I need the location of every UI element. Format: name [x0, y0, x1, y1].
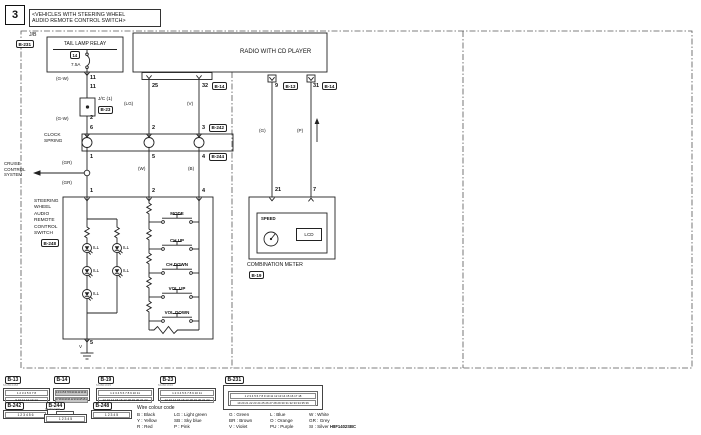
pin-cs-top-6: 6	[90, 125, 93, 131]
drawing-code: H8F1402SBC	[330, 424, 356, 430]
legend-entry: R : Red	[137, 424, 174, 430]
legend-entry: P : Pink	[174, 424, 229, 430]
meter-connector-ref: B-19	[249, 271, 264, 279]
b13-row-1: 1 2 3 4 5 6 7 8	[5, 390, 48, 396]
switch-name-label: STEERING WHEEL AUDIO REMOTE CONTROL SWIT…	[34, 199, 59, 237]
pin-jc-in-11: 11	[90, 84, 96, 90]
b23-row-1: 1 2 3 4 5 6 7 8 9 10 11	[160, 390, 214, 396]
button-mode-label: MODE	[157, 211, 197, 216]
connector-pinout-b244: 1 2 3 4 5	[44, 414, 87, 423]
ill-label-4: ILL	[123, 268, 129, 274]
button-ch-up-label: CH UP	[157, 238, 197, 243]
wire-color-g: (G)	[259, 128, 266, 134]
connector-pinout-b231: 1 2 3 4 5 6 7 8 9 10 11 12 13 14 15 16 1…	[223, 385, 323, 410]
combination-meter-label: COMBINATION METER	[247, 262, 303, 268]
pin-meter-7: 7	[313, 187, 316, 193]
radio-connector-b14: B-14	[212, 82, 227, 90]
fuse-rating: 7.5A	[71, 62, 80, 68]
fuse-number: 14	[70, 51, 80, 59]
connector-pinout-b242: 1 2 3 4 5 6	[3, 410, 48, 419]
wire-color-ground-v: V	[79, 344, 82, 350]
b248-row-1: 1 2 3 4 5	[93, 412, 130, 418]
pin-jb-11: 11	[90, 75, 96, 81]
wiring-diagram-page: 3 <VEHICLES WITH STEERING WHEEL AUDIO RE…	[0, 0, 701, 435]
pin-radio-31: 31	[313, 83, 319, 89]
figure-number: 3	[5, 5, 25, 25]
cruise-control-system-label: CRUISE CONTROL SYSTEM	[4, 161, 25, 178]
pin-sw-1: 1	[90, 188, 93, 194]
connector-pinout-b23: 1 2 3 4 5 6 7 8 9 10 11 12 13 14 15 16 1…	[158, 388, 216, 401]
cs-connector-bottom: B-244	[209, 153, 227, 161]
pin-sw-5: 5	[90, 340, 93, 346]
switch-name-6: SWITCH	[34, 231, 59, 237]
ill-label-2: ILL	[123, 245, 129, 251]
pin-cs-bot-1: 1	[90, 154, 93, 160]
title-line-2: AUDIO REMOTE CONTROL SWITCH>	[32, 18, 158, 25]
pin-meter-21: 21	[275, 187, 281, 193]
b231-row-2: 19 20 21 22 23 24 25 26 27 28 29 30 31 3…	[230, 400, 316, 406]
ill-label-5: ILL	[93, 291, 99, 297]
tail-lamp-relay-label: TAIL LAMP RELAY	[49, 41, 121, 47]
wire-color-p: (P)	[297, 128, 303, 134]
radio-label: RADIO WITH CD PLAYER	[240, 49, 311, 55]
ill-label-1: ILL	[93, 245, 99, 251]
b231-inner: 1 2 3 4 5 6 7 8 9 10 11 12 13 14 15 16 1…	[228, 391, 318, 406]
b244-row-1: 1 2 3 4 5	[46, 416, 85, 422]
b231-row-1: 1 2 3 4 5 6 7 8 9 10 11 12 13 14 15 16 1…	[230, 393, 316, 399]
b242-row-1: 1 2 3 4 5 6	[5, 412, 46, 418]
connector-id-b14: B-14	[54, 376, 70, 384]
connector-code-b19: MU801915	[96, 384, 111, 388]
wire-color-gr-upper: (GR)	[62, 160, 72, 166]
button-vol-down-label: VOL DOWN	[157, 310, 197, 315]
pin-cs-bot-4: 4	[202, 154, 205, 160]
pin-cs-top-3: 3	[202, 125, 205, 131]
radio-connector-b14-right: B-14	[322, 82, 337, 90]
pin-jc-out-2: 2	[90, 115, 93, 121]
connector-code-b23: MU801916	[158, 384, 173, 388]
pin-cs-top-2: 2	[152, 125, 155, 131]
b14-row-1: 1 2 3 4 5 6 7 8 9 10 11 12 13 14 15 16	[55, 390, 88, 396]
legend-title: Wire colour code	[137, 405, 175, 411]
pin-sw-4: 4	[202, 188, 205, 194]
circuit-artwork	[0, 0, 701, 435]
pin-radio-9: 9	[275, 83, 278, 89]
jb-connector-ref: B-231	[16, 40, 34, 48]
connector-pinout-b19: 1 2 3 4 5 6 7 8 9 10 11 12 13 14 15 16 1…	[96, 388, 154, 401]
connector-pinout-b248: 1 2 3 4 5	[91, 410, 132, 419]
switch-connector-ref: B-248	[41, 239, 59, 247]
lcd-box: LCD	[296, 228, 322, 241]
speed-gauge-label: SPEED	[261, 216, 276, 222]
wire-color-gr-lower: (GR)	[62, 180, 72, 186]
wire-color-lg: (LG)	[124, 101, 133, 107]
cs-connector-top: B-242	[209, 124, 227, 132]
wire-color-feed-upper: (G-W)	[56, 76, 69, 82]
connector-pinout-b14: 1 2 3 4 5 6 7 8 9 10 11 12 13 14 15 16 1…	[53, 388, 90, 401]
pin-cs-bot-5: 5	[152, 154, 155, 160]
connector-id-b231: B-231	[225, 376, 244, 384]
ill-label-3: ILL	[93, 268, 99, 274]
jb-label: J/B	[29, 32, 37, 38]
connector-code-b13: MU804463	[3, 384, 18, 388]
pin-sw-2: 2	[152, 188, 155, 194]
legend-entry: V : Violet	[229, 424, 270, 430]
jc-label: J/C (1)	[98, 97, 112, 103]
lcd-label: LCD	[304, 232, 313, 237]
legend-entry: PU : Purple	[270, 424, 309, 430]
clock-spring-label-2: SPRING	[44, 139, 62, 145]
radio-connector-b13: B-13	[283, 82, 298, 90]
wire-color-feed-lower: (G-W)	[56, 116, 69, 122]
connector-pinout-b13: 1 2 3 4 5 6 7 8 9 10 11 12 13 14	[3, 388, 50, 401]
dash-dot-frame	[21, 31, 692, 368]
b23-row-2: 12 13 14 15 16 17 18 19 20 21 22	[160, 397, 214, 403]
pin-radio-25: 25	[152, 83, 158, 89]
jc-connector-ref: B-23	[98, 106, 113, 114]
wire-colour-legend: B : Black LG : Light green G : Green L :…	[137, 412, 345, 431]
b19-row-1: 1 2 3 4 5 6 7 8 9 10 11	[98, 390, 152, 396]
clock-spring-label: CLOCK SPRING	[44, 133, 62, 146]
wire-color-v: (V)	[187, 101, 193, 107]
button-vol-up-label: VOL UP	[157, 286, 197, 291]
cruise-line-3: SYSTEM	[4, 172, 25, 178]
pin-radio-32: 32	[202, 83, 208, 89]
button-ch-down-label: CH DOWN	[157, 262, 197, 267]
wire-color-w: (W)	[138, 166, 145, 172]
wire-color-b: (B)	[188, 166, 194, 172]
diagram-title: <VEHICLES WITH STEERING WHEEL AUDIO REMO…	[29, 9, 161, 27]
